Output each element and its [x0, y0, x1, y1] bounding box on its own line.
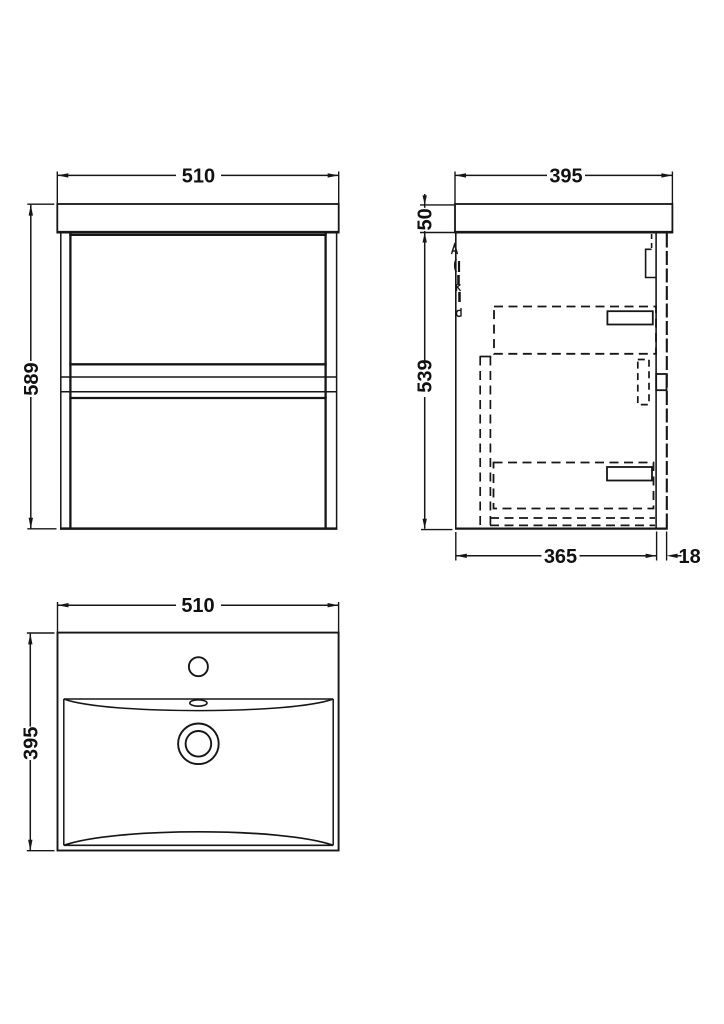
svg-text:539: 539 [415, 359, 437, 392]
svg-text:510: 510 [182, 165, 215, 187]
svg-text:395: 395 [20, 727, 42, 760]
svg-text:589: 589 [21, 362, 43, 395]
svg-text:365: 365 [544, 546, 577, 568]
svg-text:395: 395 [549, 165, 582, 187]
svg-text:50: 50 [415, 208, 437, 230]
svg-text:18: 18 [678, 546, 700, 568]
svg-text:510: 510 [181, 595, 214, 617]
